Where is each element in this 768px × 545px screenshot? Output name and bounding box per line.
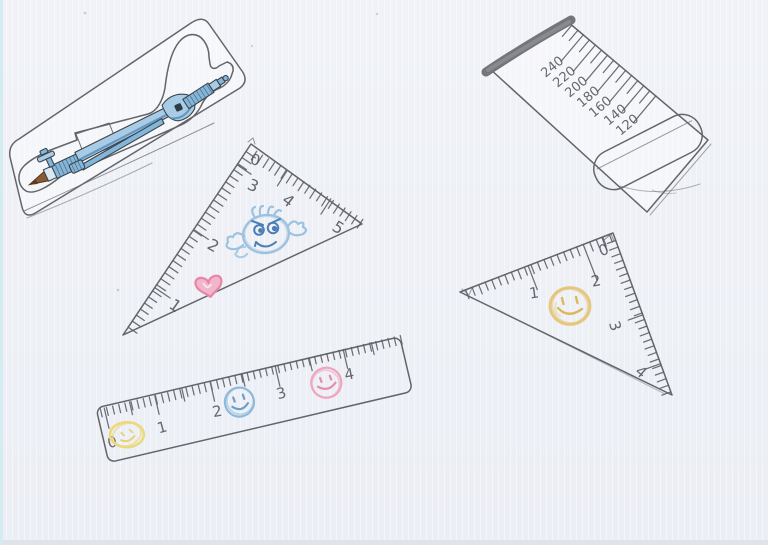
smiley-eyes [320,376,331,382]
pack-card-outline [10,19,245,215]
apex-corner-doodle [248,138,255,144]
tick-marks [128,152,255,333]
speck [376,13,378,15]
scale-label: 4 [343,365,356,385]
tick-marks [466,234,613,298]
roller-ruler: 240 220 200 180 160 140 120 [486,20,711,215]
smiley-mouth [318,383,336,391]
heart-doodle [195,275,224,299]
smiley-mouth [558,308,582,314]
face-outline [241,212,292,256]
scanned-pencil-drawing: 240 220 200 180 160 140 120 0 3 2 1 4 5 [0,0,768,545]
compass-blister-pack [10,19,245,218]
smiley-outline-echo [547,284,592,328]
scale-label: 5 [329,217,348,239]
tick-marks [100,336,406,430]
scale-label: 1 [528,283,540,302]
smiley-face-doodle [547,284,592,328]
frown-mouth [255,242,276,247]
triangle-outline [123,144,362,335]
right-wing-doodle [288,221,306,235]
scale-label: 1 [155,418,169,438]
bottom-edge-double-line [500,311,665,394]
smiley-eyes [233,395,244,402]
scale-label: 4 [278,190,298,211]
blue-smiley-doodle [222,385,257,420]
speck [117,289,120,292]
speck [84,12,87,15]
smiley-mouth [121,436,135,442]
pink-smiley-doodle [308,365,344,401]
left-iris [258,228,263,233]
grumpy-face-doodle [227,206,306,257]
sketch-canvas: 240 220 200 180 160 140 120 0 3 2 1 4 5 [0,0,768,545]
scale-label: 3 [605,319,625,334]
scale-label: 3 [245,175,262,197]
speck [251,45,253,47]
smiley-mouth [232,403,248,411]
straight-ruler-tick-group [100,336,406,430]
scale-label: 2 [589,271,602,291]
right-iris [272,226,277,231]
smiley-eyes [121,429,133,435]
scale-label: 0 [248,150,262,170]
straight-ruler: 0 1 2 3 4 [96,336,413,463]
left-triangle-ruler: 0 3 2 1 4 5 [123,138,363,335]
scale-label: 3 [274,383,288,403]
smiley-eyes [562,297,578,304]
right-triangle-ruler: 0 1 2 3 4 [460,233,672,395]
scale-label: 2 [211,402,224,422]
